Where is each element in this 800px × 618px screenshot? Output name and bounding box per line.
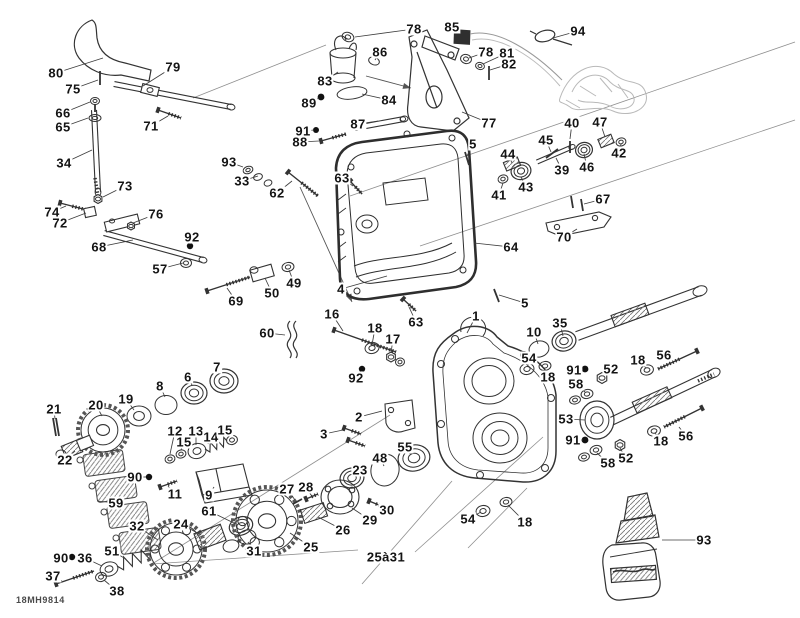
callout-5: 5 — [468, 138, 478, 151]
callout-77: 77 — [480, 117, 497, 130]
callout-82: 82 — [500, 58, 517, 71]
callout-89: 89 — [300, 97, 317, 110]
callout-47: 47 — [591, 116, 608, 129]
callout-38: 38 — [108, 585, 125, 598]
callout-63: 63 — [407, 316, 424, 329]
callout-85: 85 — [443, 21, 460, 34]
callout-58: 58 — [599, 457, 616, 470]
callout-93: 93 — [220, 156, 237, 169]
callout-56: 56 — [677, 430, 694, 443]
callout-17: 17 — [384, 333, 401, 346]
callout-39: 39 — [553, 164, 570, 177]
callout-90: 90 — [52, 552, 69, 565]
callout-3: 3 — [319, 428, 329, 441]
callout-30: 30 — [378, 504, 395, 517]
callout-51: 51 — [103, 545, 120, 558]
callout-11: 11 — [167, 488, 184, 501]
callout-54: 54 — [520, 352, 537, 365]
callout-65: 65 — [54, 121, 71, 134]
callout-29: 29 — [361, 514, 378, 527]
callout-16: 16 — [323, 308, 340, 321]
callout-36: 36 — [76, 552, 93, 565]
callout-73: 73 — [116, 180, 133, 193]
callout-18: 18 — [539, 371, 556, 384]
callout-31: 31 — [245, 545, 262, 558]
callout-24: 24 — [172, 518, 189, 531]
callout-62: 62 — [268, 187, 285, 200]
callout-18: 18 — [629, 354, 646, 367]
callout-5: 5 — [520, 297, 530, 310]
callout-21: 21 — [45, 403, 62, 416]
callout-2: 2 — [354, 411, 364, 424]
callout-84: 84 — [380, 94, 397, 107]
callout-91: 91 — [565, 364, 582, 377]
page-code: 18MH9814 — [16, 595, 65, 605]
callout-57: 57 — [151, 263, 168, 276]
callout-27: 27 — [278, 483, 295, 496]
callout-8: 8 — [155, 380, 165, 393]
callout-4: 4 — [336, 283, 346, 296]
callout-70: 70 — [555, 231, 572, 244]
callout-64: 64 — [502, 241, 519, 254]
callout-61: 61 — [200, 505, 217, 518]
callout-49: 49 — [285, 277, 302, 290]
callout-56: 56 — [655, 349, 672, 362]
callout-87: 87 — [349, 118, 366, 131]
callout-67: 67 — [594, 193, 611, 206]
callout-90: 90 — [126, 471, 143, 484]
callout-33: 33 — [233, 175, 250, 188]
callout-93: 93 — [695, 534, 712, 547]
callout-44: 44 — [499, 148, 516, 161]
callout-37: 37 — [44, 570, 61, 583]
callout-78: 78 — [405, 23, 422, 36]
callout-15: 15 — [216, 424, 233, 437]
callout-1: 1 — [471, 310, 481, 323]
callout-80: 80 — [47, 67, 64, 80]
callout-48: 48 — [371, 452, 388, 465]
callout-46: 46 — [578, 161, 595, 174]
callout-18: 18 — [516, 516, 533, 529]
callout-75: 75 — [64, 83, 81, 96]
callout-63: 63 — [333, 172, 350, 185]
callout-6: 6 — [183, 371, 193, 384]
callout-91: 91 — [564, 434, 581, 447]
callout-7: 7 — [212, 361, 222, 374]
callout-92: 92 — [183, 231, 200, 244]
callout-52: 52 — [602, 363, 619, 376]
callout-18: 18 — [652, 435, 669, 448]
callout-9: 9 — [204, 489, 214, 502]
callout-35: 35 — [551, 317, 568, 330]
callout-23: 23 — [351, 464, 368, 477]
callout-88: 88 — [291, 136, 308, 149]
callout-28: 28 — [297, 481, 314, 494]
callout-10: 10 — [525, 326, 542, 339]
exploded-parts-diagram-page: 8079756665713473747276685792788586838984… — [0, 0, 800, 618]
callout-68: 68 — [90, 241, 107, 254]
callout-25à31: 25à31 — [366, 551, 406, 564]
callout-66: 66 — [54, 107, 71, 120]
callout-59: 59 — [107, 497, 124, 510]
callout-45: 45 — [537, 134, 554, 147]
callout-69: 69 — [227, 295, 244, 308]
callout-72: 72 — [51, 217, 68, 230]
callout-76: 76 — [147, 208, 164, 221]
callout-22: 22 — [56, 454, 73, 467]
callout-34: 34 — [55, 157, 72, 170]
callout-20: 20 — [87, 399, 104, 412]
callout-40: 40 — [563, 117, 580, 130]
callout-78: 78 — [477, 46, 494, 59]
callout-94: 94 — [569, 25, 586, 38]
callout-92: 92 — [347, 372, 364, 385]
callout-83: 83 — [316, 75, 333, 88]
callout-25: 25 — [302, 541, 319, 554]
callout-labels: 8079756665713473747276685792788586838984… — [0, 0, 800, 618]
callout-53: 53 — [557, 413, 574, 426]
callout-54: 54 — [459, 513, 476, 526]
callout-41: 41 — [490, 189, 507, 202]
callout-18: 18 — [366, 322, 383, 335]
callout-71: 71 — [142, 120, 159, 133]
callout-60: 60 — [258, 327, 275, 340]
callout-79: 79 — [164, 61, 181, 74]
callout-86: 86 — [371, 46, 388, 59]
callout-42: 42 — [610, 147, 627, 160]
callout-50: 50 — [263, 287, 280, 300]
callout-32: 32 — [128, 520, 145, 533]
callout-26: 26 — [334, 524, 351, 537]
callout-52: 52 — [617, 452, 634, 465]
callout-19: 19 — [117, 393, 134, 406]
callout-58: 58 — [567, 378, 584, 391]
callout-43: 43 — [517, 181, 534, 194]
callout-55: 55 — [396, 441, 413, 454]
